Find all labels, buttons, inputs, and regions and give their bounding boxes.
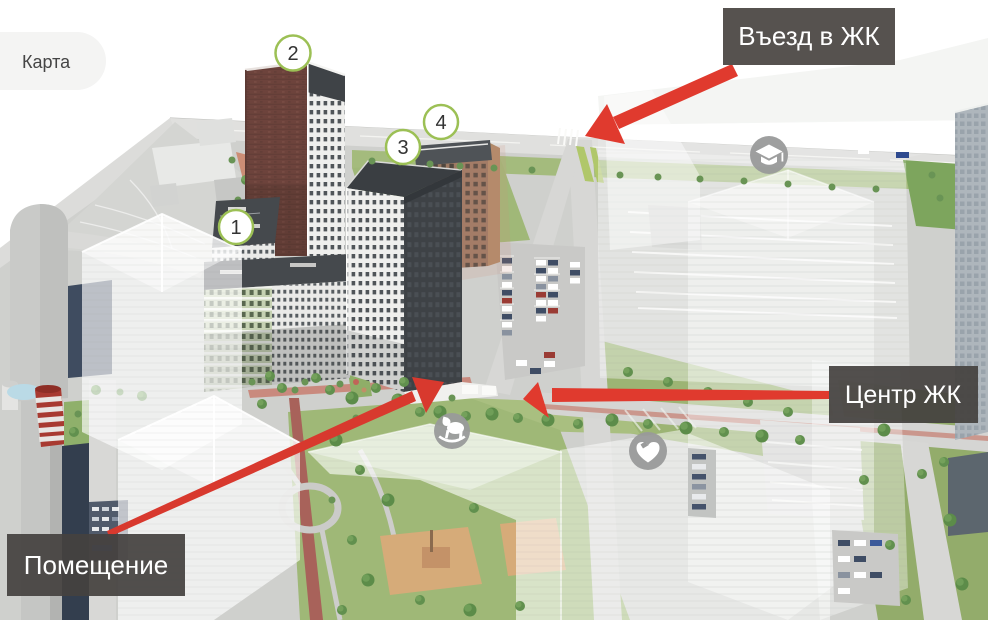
svg-text:3: 3 <box>397 137 408 159</box>
svg-text:2: 2 <box>287 43 298 65</box>
svg-text:Центр ЖК: Центр ЖК <box>845 381 962 409</box>
svg-text:1: 1 <box>230 217 241 239</box>
svg-text:4: 4 <box>435 112 446 134</box>
svg-text:Въезд в ЖК: Въезд в ЖК <box>738 21 879 51</box>
svg-text:Карта: Карта <box>22 52 71 72</box>
svg-text:Помещение: Помещение <box>24 550 168 580</box>
